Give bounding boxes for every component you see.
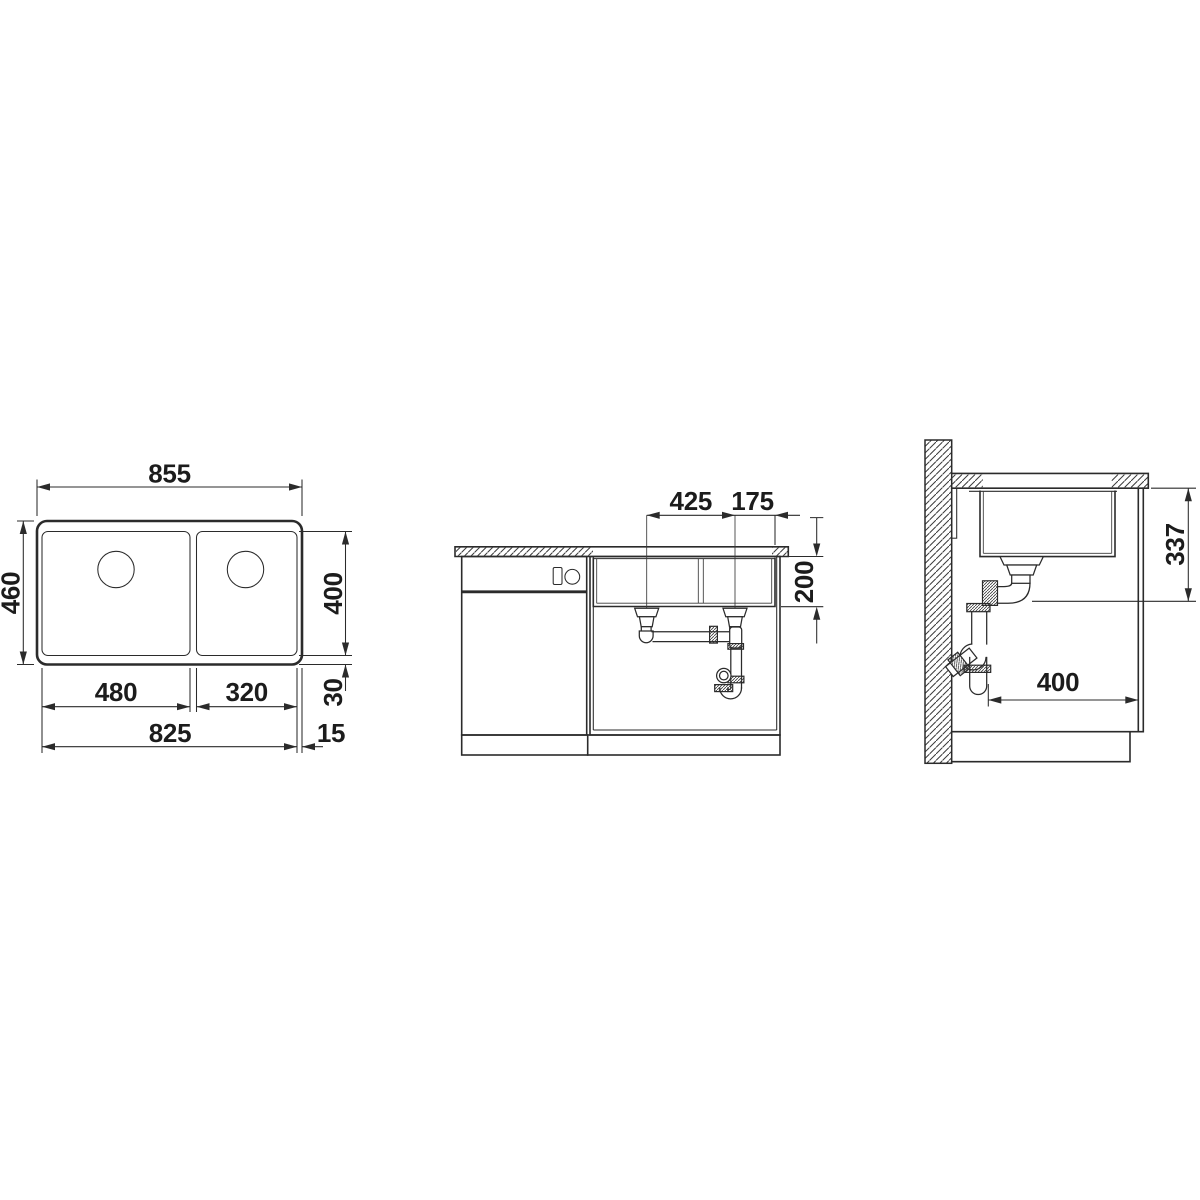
dim-bowl-height: 200	[789, 561, 819, 603]
bowl-right-top	[197, 532, 298, 656]
dim-bowl-right-width: 320	[225, 677, 267, 707]
dim-front-clearance: 400	[1037, 667, 1079, 697]
outlet-elbow-side	[997, 583, 1030, 603]
dim-total-depth: 460	[0, 572, 26, 614]
dim-total-width: 855	[148, 459, 190, 489]
top-view-dimensions: 855 460 400 30 480 320	[0, 459, 352, 754]
dim-drain-edge-offset: 175	[731, 486, 773, 516]
trap-outlet-cap	[717, 668, 731, 682]
countertop-front	[455, 547, 788, 557]
drain-hole-left	[98, 551, 134, 587]
back-mounting-rail	[952, 488, 957, 538]
plinth-front	[462, 735, 780, 755]
control-button-square	[553, 568, 562, 585]
dim-outlet-height: 337	[1160, 523, 1190, 565]
drain-plumbing-side	[943, 557, 1043, 695]
wall-section	[925, 440, 952, 763]
front-view: 425 175 200	[455, 486, 823, 755]
drawing-page: 855 460 400 30 480 320	[0, 0, 1200, 1200]
side-view: 337 400	[925, 440, 1196, 763]
dim-drain-spacing: 425	[670, 486, 712, 516]
bowl-side	[980, 491, 1115, 556]
countertop-side	[952, 473, 1149, 538]
dim-bowl-left-width: 480	[95, 677, 137, 707]
dim-rim-side: 15	[317, 718, 345, 748]
sink-technical-drawing: 855 460 400 30 480 320	[0, 0, 1200, 1200]
dim-rim-back: 30	[318, 678, 348, 706]
top-view: 855 460 400 30 480 320	[0, 459, 352, 754]
drain-hole-right	[227, 551, 263, 587]
sink-outline-top	[37, 521, 302, 665]
dim-bowls-span: 825	[149, 718, 191, 748]
dim-bowl-depth: 400	[318, 572, 348, 614]
bowl-left-top	[42, 532, 190, 656]
pipe-elbow-left	[639, 631, 653, 643]
dishwasher-cabinet	[462, 557, 587, 736]
bowls-front	[593, 559, 775, 607]
sink-base-cabinet-front	[590, 557, 780, 736]
control-button-round	[565, 569, 580, 584]
side-view-dimensions: 337 400	[988, 488, 1196, 706]
